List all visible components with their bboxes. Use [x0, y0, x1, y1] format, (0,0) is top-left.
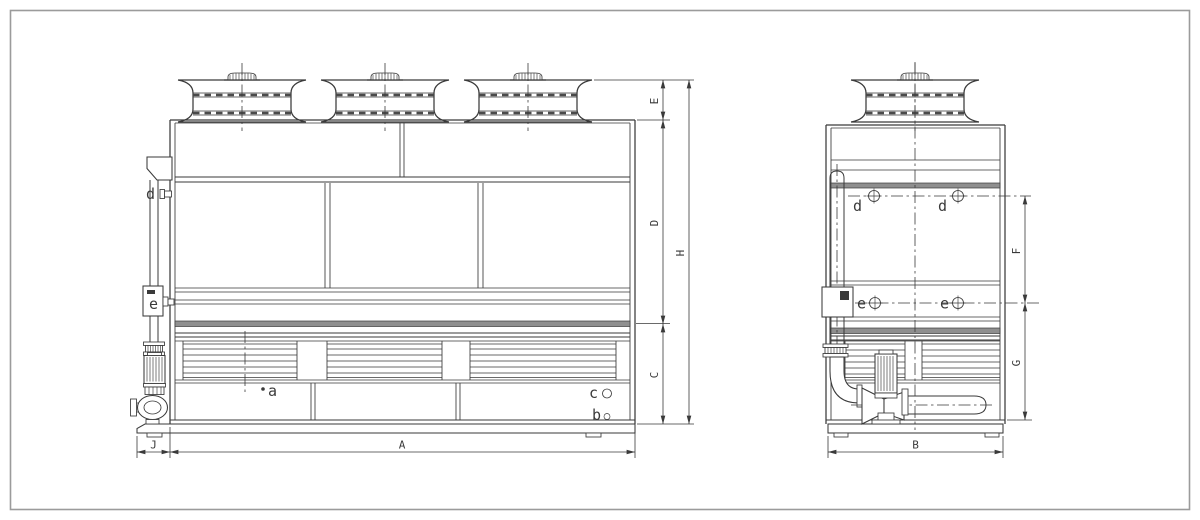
dim-label-A: A	[399, 439, 406, 452]
side-base-channel	[828, 424, 1003, 433]
front-upper-panel-divider	[400, 123, 404, 177]
side-louver-panel-right	[922, 344, 1000, 378]
riser-pipe	[150, 180, 158, 343]
front-dimensions-vertical: E D C H	[594, 80, 694, 424]
fan-stack-1	[178, 63, 306, 131]
front-dark-band	[175, 321, 630, 327]
side-pump-coupling	[875, 393, 897, 398]
front-basin-dividers	[311, 383, 460, 420]
front-body-outline	[170, 120, 635, 424]
pipe-bracket	[147, 157, 172, 180]
side-base-foot-right	[985, 433, 999, 437]
label-e-left: e	[857, 295, 866, 313]
side-base-foot-left	[834, 433, 848, 437]
side-bellows-flange-top	[823, 344, 848, 348]
label-e: e	[149, 295, 158, 313]
dim-label-G: G	[1010, 360, 1023, 367]
label-a: a	[268, 382, 277, 400]
side-view: d d e e	[822, 62, 1040, 458]
label-d: d	[146, 185, 155, 203]
front-body-bottom-edge	[175, 333, 630, 337]
front-base-foot-right	[586, 433, 601, 437]
side-pump-baseplate	[872, 420, 900, 424]
dim-label-J: J	[150, 439, 157, 452]
side-louver-band	[831, 341, 1000, 383]
side-dark-band-upper	[831, 183, 1000, 188]
front-base-channel	[137, 424, 635, 433]
bellows-flange-top	[144, 342, 165, 346]
side-body-inner-wall	[831, 128, 1000, 420]
front-base-foot-left	[147, 433, 162, 437]
front-pump-assembly: d e	[131, 157, 175, 424]
front-lower-bands	[175, 288, 630, 304]
side-connections-d: d d	[848, 189, 1031, 216]
side-dimensions-vertical: F G	[1007, 196, 1032, 420]
connection-b-circle	[604, 414, 610, 420]
front-louver-panel-3	[470, 344, 616, 378]
front-louver-band	[175, 341, 630, 383]
technical-drawing-cooling-tower: a c b d e	[0, 0, 1200, 520]
label-b: b	[592, 406, 601, 424]
front-louver-panel-2	[327, 344, 442, 378]
front-upper-band	[175, 177, 630, 182]
front-body-inner-wall	[175, 123, 630, 420]
pump-volute	[138, 396, 168, 420]
pump-support	[146, 420, 159, 425]
front-main-panel-dividers	[325, 183, 483, 288]
connection-c-circle	[603, 389, 612, 398]
side-connections-e: e e	[855, 295, 1040, 313]
label-e-right: e	[940, 295, 949, 313]
label-d-left: d	[853, 197, 862, 215]
dim-label-D: D	[648, 220, 661, 227]
drawing-svg: a c b d e	[0, 0, 1200, 520]
side-suction-flange	[857, 385, 862, 407]
connection-d-flange	[160, 190, 165, 199]
front-view: a c b d e	[131, 63, 695, 458]
side-dimensions-horizontal: B	[828, 436, 1003, 458]
side-discharge-flange	[902, 389, 908, 415]
side-upper-band	[831, 160, 1000, 170]
side-body-bottom-edge	[831, 336, 1000, 340]
dim-label-H: H	[674, 250, 687, 257]
side-pump-assembly	[822, 164, 994, 424]
point-a-marker	[261, 387, 265, 391]
fan-stack-2	[321, 63, 449, 131]
dim-label-B: B	[912, 439, 919, 452]
dim-label-C: C	[648, 372, 661, 379]
side-dark-band-lower	[831, 328, 1000, 334]
label-c: c	[589, 384, 598, 402]
pump-discharge-flange	[131, 399, 137, 416]
dim-label-F: F	[1010, 248, 1023, 255]
front-louver-panel-1	[183, 344, 297, 378]
fan-stack-3	[464, 63, 592, 131]
label-d-right: d	[938, 197, 947, 215]
dim-label-E: E	[648, 98, 661, 105]
